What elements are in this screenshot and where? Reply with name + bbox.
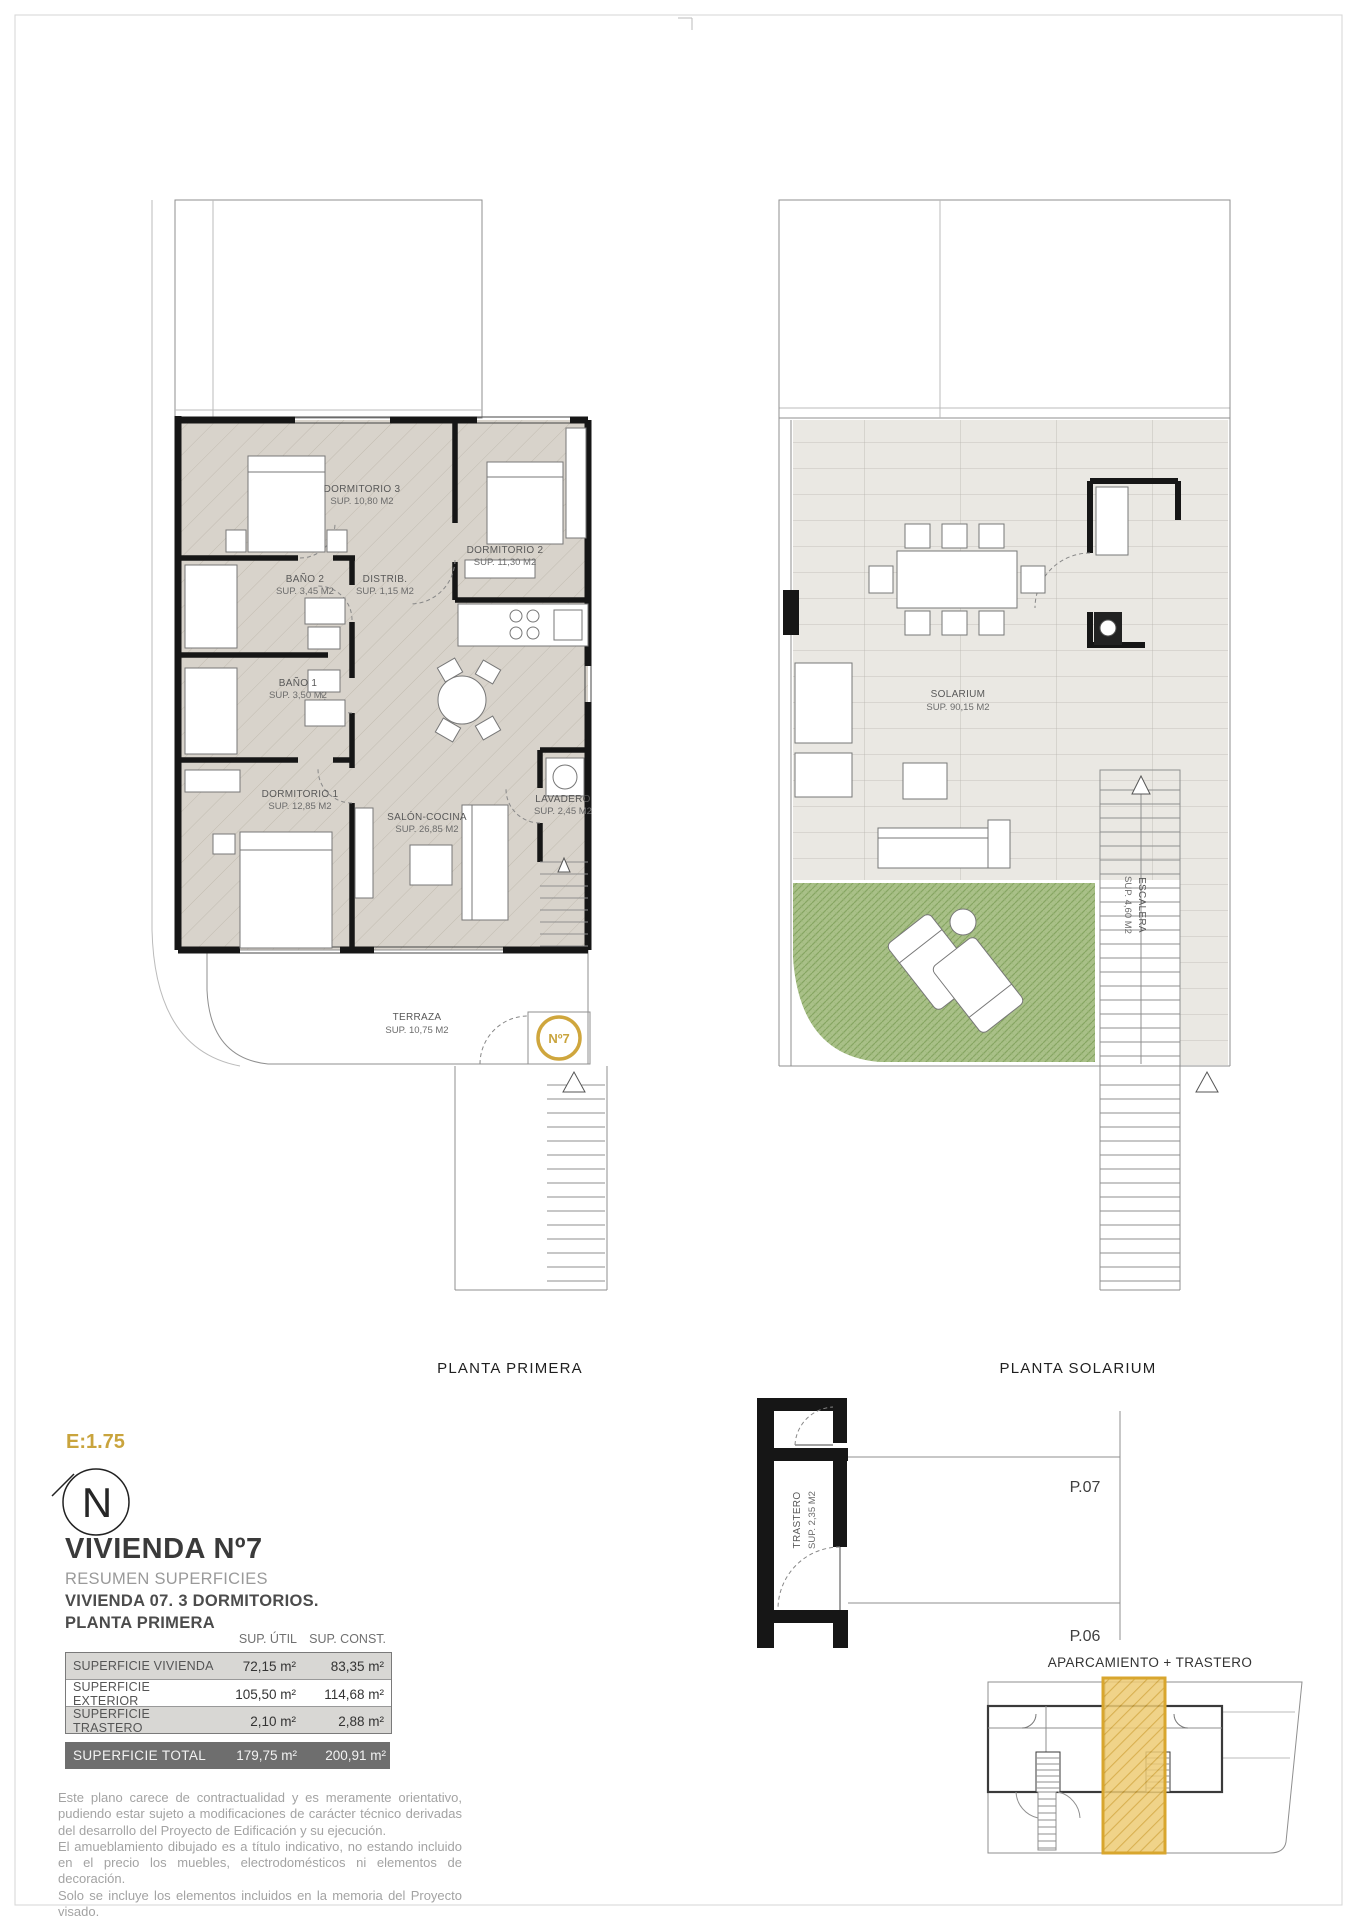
table-row: SUPERFICIE VIVIENDA 72,15 m² 83,35 m² <box>66 1653 391 1679</box>
room-sup: SUP. 1,15 M2 <box>356 586 414 597</box>
mini-site-plan: APARCAMIENTO + TRASTERO <box>988 1655 1302 1853</box>
highlighted-unit <box>1103 1678 1165 1853</box>
solarium-deck <box>793 420 1228 880</box>
parking-lines <box>848 1411 1120 1640</box>
room-label: DORMITORIO 1 <box>262 789 339 800</box>
room-sup: SUP. 10,80 M2 <box>330 496 393 507</box>
room-sup: SUP. 2,45 M2 <box>534 806 592 817</box>
col-sup-const: SUP. CONST. <box>301 1632 390 1646</box>
room-sup: SUP. 3,50 M2 <box>269 690 327 701</box>
surfaces-table: SUPERFICIE VIVIENDA 72,15 m² 83,35 m² SU… <box>65 1652 392 1734</box>
disclaimer-p1: Este plano carece de contractualidad y e… <box>58 1790 462 1839</box>
room-label: BAÑO 2 <box>286 572 325 585</box>
row-util: 2,10 m² <box>216 1714 300 1729</box>
room-label: DISTRIB. <box>363 574 408 585</box>
room-sup: SUP. 90,15 M2 <box>926 702 989 713</box>
exterior-stairs-left <box>455 1066 607 1290</box>
parking-space-bottom: P.06 <box>1070 1628 1101 1645</box>
scale-label: E:1.75 <box>66 1431 125 1453</box>
stairs-label: ESCALERA SUP. 4,60 M2 <box>1122 876 1147 934</box>
unit-badge: Nº7 <box>528 1012 590 1064</box>
svg-text:ESCALERA: ESCALERA <box>1136 877 1147 933</box>
row-label: SUPERFICIE TRASTERO <box>66 1707 216 1735</box>
room-label: DORMITORIO 3 <box>324 484 401 495</box>
disclaimer-p2: El amueblamiento dibujado es a título in… <box>58 1839 462 1888</box>
svg-text:TRASTERO: TRASTERO <box>792 1492 803 1549</box>
terrace-floor <box>207 950 588 1064</box>
room-label: LAVADERO <box>535 794 590 805</box>
room-sup: SUP. 12,85 M2 <box>268 801 331 812</box>
plan-planta-primera: Nº7 DORMITORIO 3 SUP. 10,80 M2 DORMITORI… <box>152 200 607 1377</box>
scale-and-north: E:1.75 N <box>52 1431 129 1535</box>
disclaimer: Este plano carece de contractualidad y e… <box>58 1790 462 1920</box>
unit-badge-label: Nº7 <box>548 1031 569 1046</box>
caption-planta-primera: PLANTA PRIMERA <box>437 1360 583 1377</box>
subtitle: RESUMEN SUPERFICIES <box>65 1570 319 1589</box>
project-info: VIVIENDA Nº7 RESUMEN SUPERFICIES VIVIEND… <box>65 1534 319 1633</box>
svg-text:SUP. 4,60 M2: SUP. 4,60 M2 <box>1122 876 1133 934</box>
room-label: DORMITORIO 2 <box>467 545 544 556</box>
room-sup: SUP. 3,45 M2 <box>276 586 334 597</box>
plan-planta-solarium: ESCALERA SUP. 4,60 M2 SOLARIUM SUP. 90,1… <box>779 200 1230 1377</box>
page-title: VIVIENDA Nº7 <box>65 1534 319 1564</box>
info-line-1: VIVIENDA 07. 3 DORMITORIOS. <box>65 1592 319 1611</box>
total-util: 179,75 m² <box>217 1748 301 1763</box>
parking-space-top: P.07 <box>1070 1479 1101 1496</box>
kitchen-counter <box>458 604 588 646</box>
room-label: SOLARIUM <box>931 689 986 700</box>
row-util: 72,15 m² <box>216 1659 300 1674</box>
plan-sheet: Nº7 DORMITORIO 3 SUP. 10,80 M2 DORMITORI… <box>0 0 1357 1920</box>
trastero-detail: TRASTERO SUP. 2,35 M2 P.07 P.06 <box>757 1398 1120 1648</box>
laundry-fixtures <box>546 758 584 796</box>
room-sup: SUP. 10,75 M2 <box>385 1025 448 1036</box>
roof-area <box>175 200 482 418</box>
row-const: 114,68 m² <box>300 1687 388 1702</box>
room-label: SALÓN-COCINA <box>387 810 467 823</box>
total-label: SUPERFICIE TOTAL <box>65 1748 217 1763</box>
total-const: 200,91 m² <box>301 1748 390 1763</box>
room-label: TERRAZA <box>393 1012 442 1023</box>
total-row: SUPERFICIE TOTAL 179,75 m² 200,91 m² <box>65 1742 390 1769</box>
room-label: BAÑO 1 <box>279 676 318 689</box>
solarium-roof-area <box>779 200 1230 418</box>
table-header: SUP. ÚTIL SUP. CONST. <box>65 1632 390 1646</box>
solarium-deck-strip <box>1180 880 1228 1065</box>
disclaimer-p3: Solo se incluye los elementos incluidos … <box>58 1888 462 1920</box>
svg-text:SUP. 2,35 M2: SUP. 2,35 M2 <box>807 1491 818 1549</box>
col-sup-util: SUP. ÚTIL <box>217 1632 301 1646</box>
room-sup: SUP. 26,85 M2 <box>395 824 458 835</box>
caption-planta-solarium: PLANTA SOLARIUM <box>1000 1360 1157 1377</box>
info-line-2: PLANTA PRIMERA <box>65 1614 319 1633</box>
north-letter: N <box>82 1479 112 1526</box>
row-const: 2,88 m² <box>300 1714 388 1729</box>
wall-stub <box>783 590 799 635</box>
table-row: SUPERFICIE TRASTERO 2,10 m² 2,88 m² <box>66 1706 391 1733</box>
row-label: SUPERFICIE VIVIENDA <box>66 1659 216 1673</box>
table-row: SUPERFICIE EXTERIOR 105,50 m² 114,68 m² <box>66 1679 391 1706</box>
room-sup: SUP. 11,30 M2 <box>474 557 537 568</box>
row-const: 83,35 m² <box>300 1659 388 1674</box>
trastero-label: TRASTERO SUP. 2,35 M2 <box>792 1491 818 1549</box>
exterior-stairs-right <box>1100 1066 1218 1290</box>
row-label: SUPERFICIE EXTERIOR <box>66 1680 216 1708</box>
row-util: 105,50 m² <box>216 1687 300 1702</box>
site-plan-title: APARCAMIENTO + TRASTERO <box>1048 1655 1253 1670</box>
